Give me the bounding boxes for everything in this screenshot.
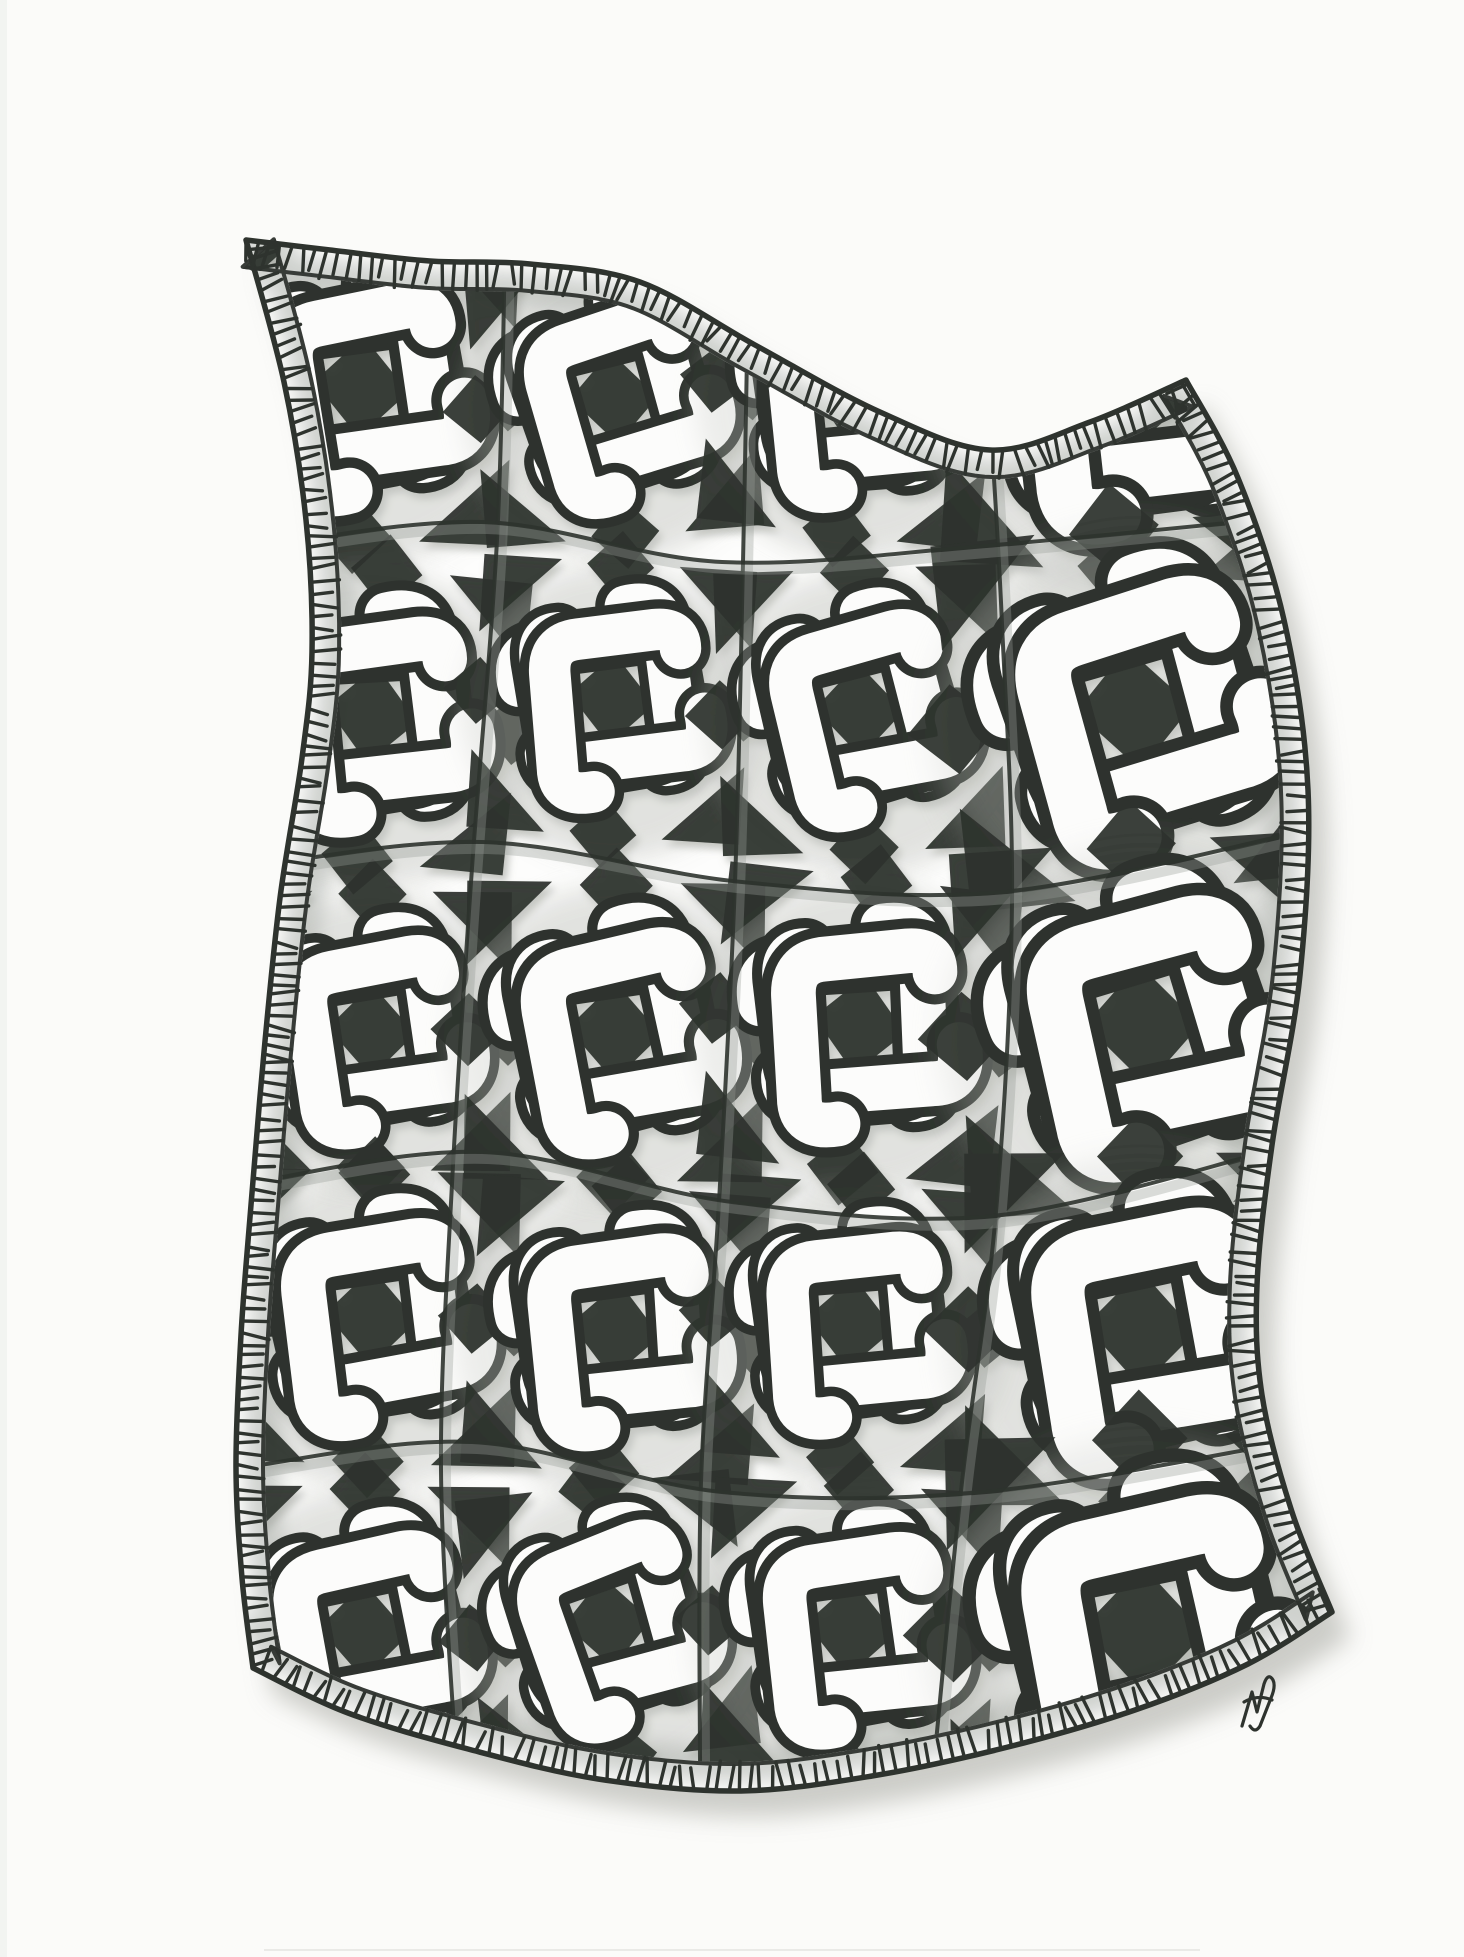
binding-tick [314, 675, 336, 677]
binding-tick [257, 1167, 275, 1168]
binding-tick [244, 1321, 267, 1322]
binding-tick [907, 1740, 909, 1767]
binding-tick [251, 247, 273, 249]
knot-gap-fill [327, 1736, 398, 1810]
binding-tick [680, 1766, 681, 1786]
binding-tick [1271, 694, 1295, 695]
binding-tick [302, 468, 320, 469]
binding-tick [247, 1284, 271, 1285]
binding-tick [312, 557, 334, 558]
binding-tick [251, 1232, 278, 1234]
binding-tick [249, 1255, 267, 1257]
scan-edge-bottom-artifact [264, 1949, 1201, 1951]
knot-gap-fill [957, 197, 1067, 307]
binding-tick [1274, 727, 1301, 729]
binding-tick [283, 894, 309, 895]
binding-tick [546, 268, 548, 288]
binding-tick [1228, 1350, 1255, 1352]
knot-gap-fill [906, 332, 1004, 427]
binding-tick [750, 1765, 752, 1788]
binding-tick [261, 1119, 280, 1121]
binding-tick [292, 839, 319, 841]
binding-tick [274, 975, 299, 977]
knot-gap-fill [720, 238, 809, 327]
binding-tick [246, 1598, 266, 1599]
binding-tick [1247, 1131, 1271, 1132]
binding-tick [1272, 716, 1299, 718]
binding-tick [314, 592, 333, 594]
binding-tick [253, 1213, 275, 1214]
binding-tick [371, 258, 373, 284]
binding-tick [988, 1731, 989, 1750]
scan-edge-left-artifact [0, 0, 7, 1957]
binding-tick [240, 1408, 258, 1409]
binding-tick [1271, 1018, 1292, 1019]
binding-tick [265, 1073, 287, 1074]
binding-tick [241, 1377, 264, 1379]
binding-tick [1282, 844, 1306, 846]
binding-tick [815, 1764, 817, 1782]
binding-tick [281, 906, 308, 907]
binding-tick [394, 260, 395, 287]
binding-tick [242, 1365, 262, 1367]
binding-tick [245, 1309, 265, 1310]
binding-tick [1279, 926, 1303, 928]
binding-tick [244, 1577, 271, 1578]
binding-tick [1248, 1165, 1266, 1166]
binding-tick [1275, 739, 1302, 740]
binding-tick [313, 685, 333, 686]
binding-tick [502, 1737, 503, 1756]
binding-tick [1248, 584, 1273, 585]
zentangle-artwork [0, 0, 1464, 1957]
binding-tick [240, 1398, 258, 1400]
knot-gap-fill [199, 995, 271, 1064]
binding-tick [758, 1765, 759, 1788]
binding-tick [1274, 974, 1297, 975]
binding-tick [271, 1003, 296, 1005]
binding-tick [296, 812, 317, 813]
binding-tick [313, 580, 339, 582]
binding-tick [1284, 854, 1306, 855]
binding-tick [268, 1035, 288, 1037]
binding-tick [1277, 761, 1304, 762]
binding-tick [305, 490, 323, 491]
knot-gap-fill [950, 372, 1029, 449]
binding-tick [1242, 1210, 1262, 1211]
binding-tick [1252, 1098, 1278, 1099]
binding-tick [315, 649, 341, 651]
binding-tick [1227, 1316, 1254, 1318]
binding-tick [280, 919, 304, 920]
binding-tick [275, 963, 301, 964]
binding-tick [273, 985, 296, 986]
binding-tick [254, 1200, 273, 1201]
binding-tick [305, 754, 331, 755]
binding-tick [1288, 795, 1306, 797]
binding-tick [1283, 915, 1303, 917]
binding-tick [453, 264, 455, 289]
binding-tick [466, 265, 467, 289]
knot-gap-fill [1217, 214, 1327, 324]
binding-tick [248, 1276, 268, 1277]
knot-gap-fill [1263, 355, 1361, 450]
binding-tick [251, 1630, 270, 1632]
binding-tick [1255, 597, 1276, 599]
binding-tick [303, 250, 304, 272]
binding-tick [1281, 863, 1305, 865]
scanned-page [0, 0, 1464, 1957]
binding-tick [574, 1750, 576, 1773]
binding-tick [863, 1750, 864, 1775]
binding-tick [1033, 1719, 1034, 1738]
binding-tick [300, 786, 320, 787]
binding-tick [1279, 771, 1304, 772]
knot-gap-fill [920, 262, 1009, 351]
knot-gap-fill [172, 341, 253, 419]
knot-gap-fill [1268, 1285, 1358, 1372]
knot-gap-fill [202, 445, 292, 535]
binding-tick [259, 1141, 283, 1143]
binding-tick [314, 615, 332, 617]
binding-tick [595, 1756, 596, 1776]
binding-tick [310, 536, 336, 537]
knot-gap-fill [1230, 1711, 1343, 1824]
binding-tick [1241, 1199, 1262, 1200]
binding-tick [239, 1442, 258, 1443]
knot-gap-fill [218, 1692, 301, 1775]
binding-tick [1275, 984, 1297, 985]
binding-tick [270, 1016, 292, 1017]
binding-tick [266, 1062, 289, 1063]
binding-tick [314, 663, 335, 664]
binding-tick [262, 1104, 287, 1106]
knot-gap-fill [1097, 163, 1192, 261]
binding-tick [739, 1761, 740, 1788]
binding-tick [1230, 1252, 1256, 1254]
binding-tick [308, 513, 326, 514]
binding-tick [276, 954, 296, 955]
binding-tick [1254, 609, 1279, 610]
binding-tick [258, 1155, 280, 1156]
binding-tick [239, 1421, 263, 1422]
binding-tick [607, 1755, 608, 1778]
binding-tick [1287, 811, 1306, 812]
binding-tick [521, 266, 522, 289]
binding-tick [260, 1130, 285, 1131]
binding-tick [359, 256, 361, 280]
knot-gap-fill [1099, 1771, 1197, 1872]
knot-gap-fill [188, 660, 270, 739]
knot-gap-fill [830, 218, 907, 297]
binding-tick [1287, 879, 1306, 881]
binding-tick [309, 526, 327, 528]
binding-tick [1270, 1040, 1288, 1041]
binding-tick [244, 1567, 268, 1568]
binding-tick [245, 1584, 270, 1586]
